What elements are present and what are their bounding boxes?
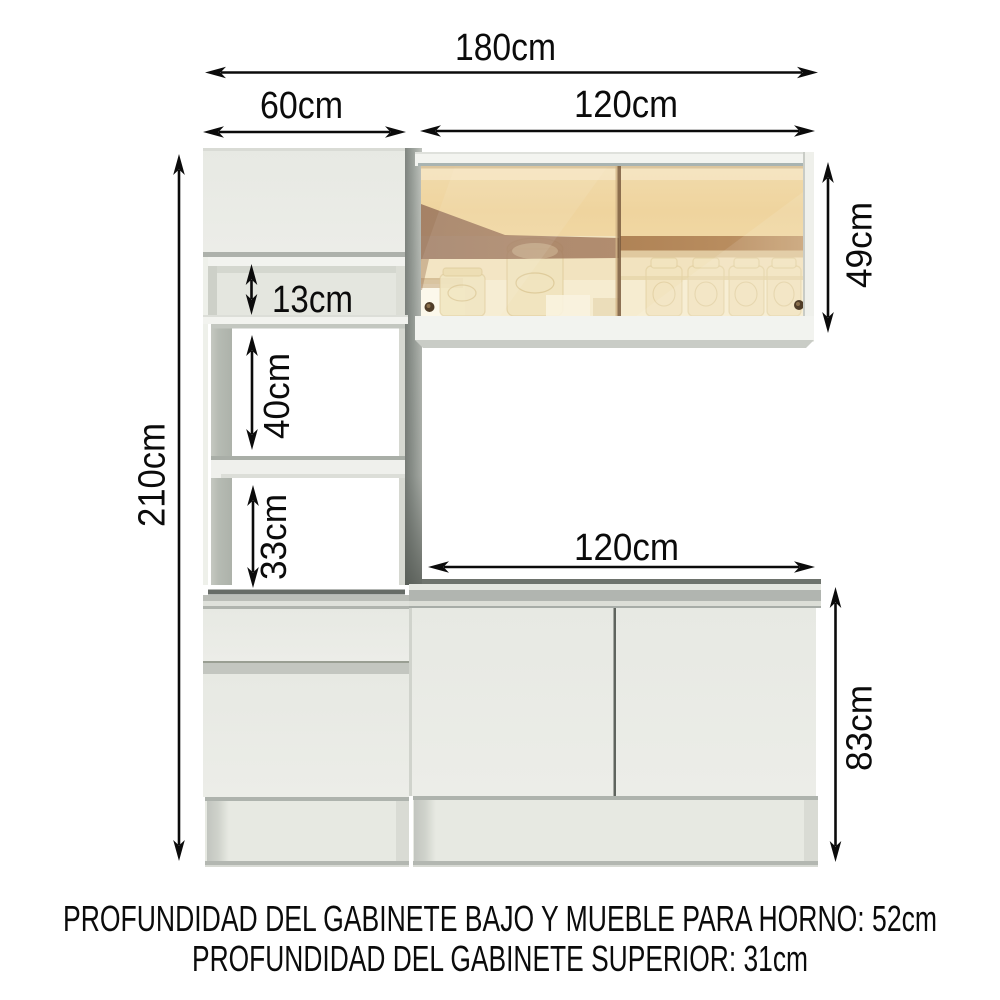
svg-text:13cm: 13cm [272, 279, 353, 321]
svg-text:83cm: 83cm [839, 685, 880, 771]
svg-text:PROFUNDIDAD DEL GABINETE BAJO: PROFUNDIDAD DEL GABINETE BAJO Y MUEBLE P… [63, 898, 937, 939]
svg-text:210cm: 210cm [132, 423, 174, 527]
svg-text:180cm: 180cm [455, 27, 556, 69]
svg-text:120cm: 120cm [574, 84, 678, 126]
svg-text:120cm: 120cm [574, 527, 679, 569]
svg-text:60cm: 60cm [260, 85, 343, 127]
svg-text:PROFUNDIDAD DEL GABINETE SUPER: PROFUNDIDAD DEL GABINETE SUPERIOR: 31cm [192, 938, 808, 979]
svg-text:33cm: 33cm [253, 494, 294, 580]
svg-text:49cm: 49cm [839, 202, 880, 288]
svg-text:40cm: 40cm [256, 353, 297, 439]
